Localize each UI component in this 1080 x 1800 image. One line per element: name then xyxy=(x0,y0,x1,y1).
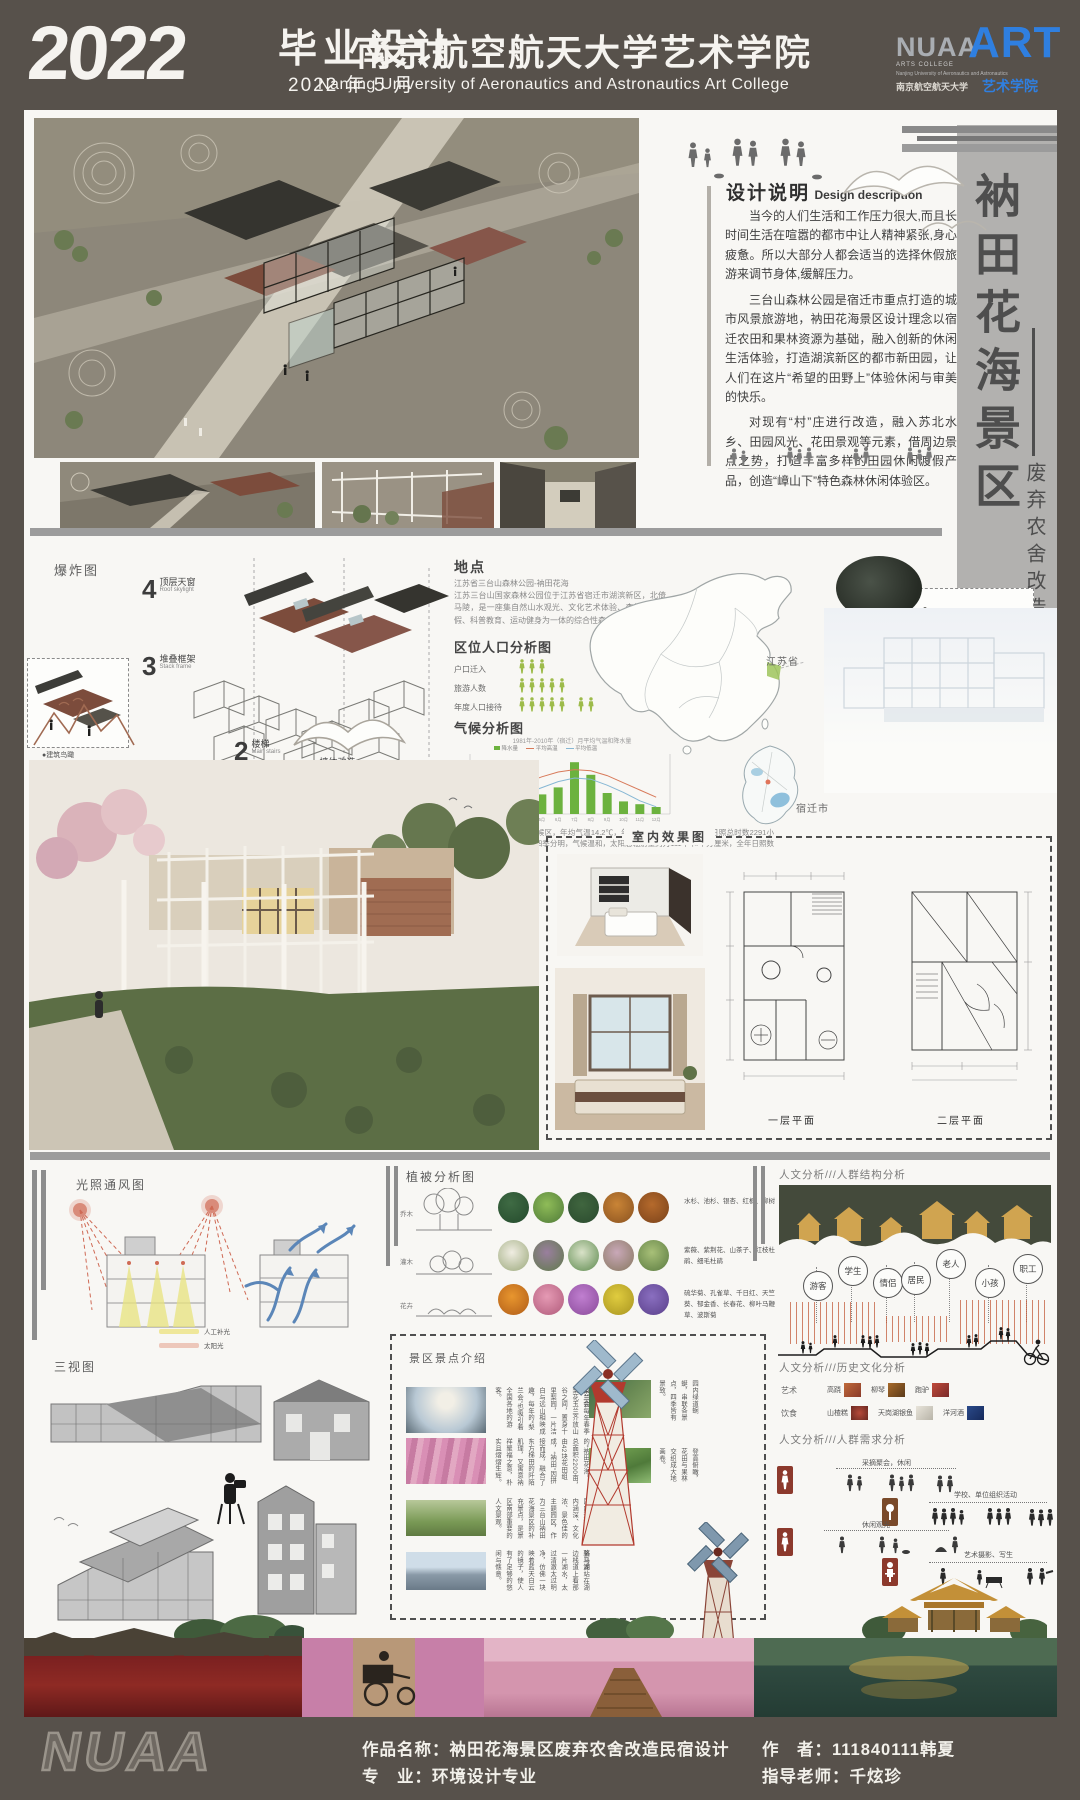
poster-screenshot: { "header": { "year": "2022", "title": "… xyxy=(0,0,1080,1800)
logo-art-text: ART xyxy=(968,18,1061,68)
vegetation-title: 植被分析图 xyxy=(406,1168,476,1185)
veg-photo-purple-shrub xyxy=(533,1240,564,1271)
sunvent-deco-bar-2 xyxy=(41,1170,46,1290)
sunvent-diagram xyxy=(52,1192,367,1330)
step-3-en: Stack frame xyxy=(159,664,195,670)
work-label: 作品名称： xyxy=(362,1741,450,1759)
svg-text:8月: 8月 xyxy=(588,817,595,823)
logo-cn: 南京航空航天大学 xyxy=(896,80,968,93)
group-circle-worker: 职工 xyxy=(1013,1254,1043,1284)
group-circle-child: 小孩 xyxy=(975,1268,1005,1298)
work-value: 衲田花海景区废弃农舍改造民宿设计 xyxy=(450,1741,730,1759)
floor-plan-1 xyxy=(716,850,868,1102)
veg-desc-2: 紫薇、紫荆花、山茶子、红枝杜鹃、细毛杜鹃 xyxy=(684,1245,784,1267)
culture-thumb-gaoqiao xyxy=(844,1383,861,1397)
nuaa-wordmark: NUAA xyxy=(37,1721,220,1783)
perspective-render-3 xyxy=(500,462,636,528)
culture-item-liuqin: 柳琴 xyxy=(871,1385,885,1395)
tree-cutout-2 xyxy=(584,1608,674,1642)
step-2-cn: 楼梯 xyxy=(251,740,280,749)
need-icon-3 xyxy=(777,1528,793,1556)
need-bracket-2 xyxy=(929,1502,1047,1503)
seagull-icons xyxy=(824,138,1009,263)
rickshaw-silhouette xyxy=(354,1646,424,1710)
school-name-en: Nanjing University of Aeronautics and As… xyxy=(318,76,789,94)
sunvent-title: 光照通风图 xyxy=(76,1176,146,1193)
population-row-3-label: 年度人口接待 xyxy=(454,702,518,713)
scenic-photo-3 xyxy=(406,1500,486,1536)
svg-text:6月: 6月 xyxy=(555,817,562,823)
veg-photo-pink-flower xyxy=(533,1284,564,1315)
floor-plan-2 xyxy=(882,854,1040,1100)
author-row: 作 者：111840111韩夏 xyxy=(762,1737,955,1764)
legend-high: 平均高温 xyxy=(526,744,558,752)
school-name-cn: 南京航空航天大学艺术学院 xyxy=(356,24,812,76)
crowd-silhouettes xyxy=(724,440,949,476)
population-row-1-label: 户口迁入 xyxy=(454,664,518,675)
culture-item-shanzha: 山楂糕 xyxy=(827,1408,848,1418)
mountain-sketch xyxy=(29,695,139,753)
population-row-1-icons xyxy=(518,659,548,679)
veg-photo-violet-flower xyxy=(638,1284,669,1315)
pavilion-reflection-glow xyxy=(834,1648,984,1708)
culture-thumb-shanzha xyxy=(851,1406,868,1420)
subtitle-dash xyxy=(1032,328,1035,456)
svg-text:12月: 12月 xyxy=(652,817,661,823)
group-circle-tourist: 游客 xyxy=(803,1271,833,1301)
exploded-step-4: 4 顶层天窗Roof skylight xyxy=(142,578,195,601)
step-3-num: 3 xyxy=(142,655,156,678)
design-desc-p2: 三台山森林公园是宿迁市重点打造的城市风景旅游地，衲田花海景区设计理念以宿迁农田和… xyxy=(725,291,957,408)
veg-photo-purple-flower xyxy=(568,1284,599,1315)
veg-photo-white-green xyxy=(568,1240,599,1271)
windmill-large xyxy=(544,1340,672,1548)
veg-photo-autumn-2 xyxy=(638,1192,669,1223)
veg-circles-row-1 xyxy=(498,1192,673,1223)
need-group-1b xyxy=(886,1472,920,1494)
interior-render-1 xyxy=(557,854,703,956)
sunvent-deco-bar-1 xyxy=(32,1170,37,1340)
legend-precip: 降水量 xyxy=(494,744,518,752)
population-row-1: 户口迁入 xyxy=(454,659,548,679)
work-title-row: 作品名称：衲田花海景区废弃农舍改造民宿设计 xyxy=(362,1737,730,1764)
village-roofline xyxy=(24,1624,302,1656)
veg-photo-ginkgo xyxy=(568,1192,599,1223)
need-label-4: 艺术摄影、写生 xyxy=(964,1550,1013,1560)
veg-sketch-flowers xyxy=(414,1286,494,1322)
section-divider-2 xyxy=(30,1152,1050,1160)
pavilion-cutout xyxy=(862,1572,1047,1642)
floor-plan-2-label: 二层平面 xyxy=(882,1112,1040,1127)
perspective-render-2 xyxy=(322,462,494,528)
nuaa-art-logo: NUAA ART ARTS COLLEGE Nanjing University… xyxy=(896,18,1066,98)
major-row: 专 业：环境设计专业 xyxy=(362,1764,730,1791)
perspective-render-1 xyxy=(60,462,315,528)
veg-photo-green-shrub xyxy=(638,1240,669,1271)
advisor-label: 指导老师： xyxy=(762,1768,850,1786)
scenic-photo-2 xyxy=(406,1438,486,1484)
location-title: 地点 xyxy=(454,557,486,577)
population-row-2-icons xyxy=(518,678,568,698)
legend-artificial: 人工补光 xyxy=(159,1326,230,1336)
svg-text:10月: 10月 xyxy=(619,817,628,823)
interior-render-2 xyxy=(555,968,705,1130)
design-desc-title-cn: 设计说明 xyxy=(726,183,810,204)
veg-cat-1: 乔木 xyxy=(400,1208,413,1218)
logo-nuaa-text: NUAA xyxy=(896,32,978,63)
population-title: 区位人口分析图 xyxy=(454,637,552,656)
culture-cat-food: 饮食 xyxy=(781,1408,827,1419)
humanities-h1: 人文分析///人群结构分析 xyxy=(779,1167,906,1182)
need-bracket-3 xyxy=(824,1530,949,1531)
scenic-title: 景区景点介绍 xyxy=(409,1350,487,1366)
city-label: 宿迁市 xyxy=(796,800,829,815)
desc-divider-line xyxy=(707,186,711,466)
boardwalk xyxy=(584,1668,664,1717)
step-2-en: Main stairs xyxy=(251,749,280,755)
veg-photo-grass-plume xyxy=(603,1240,634,1271)
veg-photo-orange-flower xyxy=(498,1284,529,1315)
veg-circles-row-2 xyxy=(498,1240,673,1271)
culture-item-paolv: 跑驴 xyxy=(915,1385,929,1395)
svg-text:5月: 5月 xyxy=(539,817,546,823)
group-circle-couple: 情侣 xyxy=(873,1268,903,1298)
climate-title: 气候分析图 xyxy=(454,718,524,737)
scenic-photo-1 xyxy=(406,1387,486,1433)
svg-text:7月: 7月 xyxy=(571,817,578,823)
province-label: 江苏省 xyxy=(766,653,799,668)
legend-sunlight: 太阳光 xyxy=(159,1340,230,1350)
bottom-photo-strip xyxy=(24,1638,1057,1717)
step-4-en: Roof skylight xyxy=(159,587,195,593)
veg-circles-row-3 xyxy=(498,1284,673,1315)
veg-desc-3: 硫华菊、孔雀草、千日红、天竺葵、郁金香、长春花、柳叶马鞭草、波斯菊 xyxy=(684,1288,784,1321)
culture-thumb-paolv xyxy=(932,1383,949,1397)
need-icon-1 xyxy=(777,1466,793,1494)
credits-right: 作 者：111840111韩夏 指导老师：千炫珍 xyxy=(762,1737,955,1791)
interior-box-title: 室内效果图 xyxy=(624,828,715,845)
culture-item-yanghe: 洋河酒 xyxy=(943,1408,964,1418)
need-group-3b xyxy=(874,1534,914,1556)
footer: NUAA 作品名称：衲田花海景区废弃农舍改造民宿设计 专 业：环境设计专业 作 … xyxy=(0,1717,1080,1800)
credits-left: 作品名称：衲田花海景区废弃农舍改造民宿设计 专 业：环境设计专业 xyxy=(362,1737,730,1791)
veg-sketch-shrubs xyxy=(414,1240,494,1280)
year-label: 2022 xyxy=(25,10,188,97)
humanities-deco-bar-2 xyxy=(761,1166,765,1244)
advisor-row: 指导老师：千炫珍 xyxy=(762,1764,955,1791)
faded-building-lines xyxy=(824,608,1057,793)
need-label-1: 采摘聚会，休闲 xyxy=(862,1458,911,1468)
author-label: 作 者： xyxy=(762,1741,832,1759)
exploded-step-3: 3 堆叠框架Stack frame xyxy=(142,655,195,678)
group-circle-student: 学生 xyxy=(838,1256,868,1286)
culture-row-art: 艺术 高跷 柳琴 跑驴 xyxy=(781,1383,959,1397)
culture-thumb-yanghe xyxy=(967,1406,984,1420)
population-row-2-label: 旅游人数 xyxy=(454,683,518,694)
faded-building-render xyxy=(824,608,1057,793)
veg-cat-3: 花卉 xyxy=(400,1300,413,1310)
poster-board: 设计说明 Design description 当今的人们生活和工作压力很大,而… xyxy=(24,110,1057,1717)
veg-desc-1: 水杉、池杉、银杏、红枫、柳树 xyxy=(684,1196,784,1207)
night-skyline xyxy=(779,1185,1051,1267)
need-label-2: 学校、单位组织活动 xyxy=(954,1490,1017,1500)
step-4-cn: 顶层天窗 xyxy=(159,578,195,587)
scenic-desc-4: 骆马湖站在湖边栈道上看那一片湖水，太过清澈太过明净，仿佛一块映着蓝天白云的镜子，… xyxy=(492,1550,591,1596)
need-label-3: 休闲观光 xyxy=(862,1520,890,1530)
step-4-num: 4 xyxy=(142,578,156,601)
group-circle-resident: 居民 xyxy=(901,1265,931,1295)
culture-item-yinyu: 天岗湖银鱼 xyxy=(878,1408,913,1418)
scenic-photo-4 xyxy=(406,1552,486,1590)
header: 2022 毕业设计 2022 年 5 月 南京航空航天大学艺术学院 Nanjin… xyxy=(0,0,1080,110)
floor-plan-1-label: 一层平面 xyxy=(716,1112,868,1127)
group-circle-elder: 老人 xyxy=(936,1249,966,1279)
veg-photo-green-tree xyxy=(533,1192,564,1223)
major-label: 专 业： xyxy=(362,1768,432,1786)
vegetation-deco-bar-2 xyxy=(394,1166,398,1246)
veg-photo-yellow-flower xyxy=(603,1284,634,1315)
humanities-h2: 人文分析///历史文化分析 xyxy=(779,1360,906,1375)
threeview-drawings xyxy=(46,1372,381,1627)
step-3-cn: 堆叠框架 xyxy=(159,655,195,664)
culture-thumb-liuqin xyxy=(888,1383,905,1397)
culture-item-gaoqiao: 高跷 xyxy=(827,1385,841,1395)
veg-cat-2: 灌木 xyxy=(400,1256,413,1266)
veg-photo-white-bloom xyxy=(498,1240,529,1271)
logo-arts-college: ARTS COLLEGE xyxy=(896,62,954,68)
need-group-3a xyxy=(832,1534,866,1556)
need-bracket-1 xyxy=(836,1468,956,1469)
svg-text:11月: 11月 xyxy=(636,817,645,823)
suqian-map xyxy=(732,742,807,834)
section-divider-1 xyxy=(30,528,942,536)
site-axonometric-render xyxy=(34,118,639,458)
advisor-value: 千炫珍 xyxy=(850,1768,903,1786)
vegetation-deco-bar-1 xyxy=(386,1166,390,1266)
need-group-2a xyxy=(929,1505,969,1529)
humanities-deco-bar-1 xyxy=(753,1166,757,1261)
exterior-render xyxy=(29,760,539,1150)
need-group-3c xyxy=(929,1534,969,1556)
culture-cat-art: 艺术 xyxy=(781,1385,827,1396)
author-value: 111840111韩夏 xyxy=(832,1741,955,1759)
veg-sketch-trees xyxy=(414,1188,494,1234)
veg-photo-autumn-1 xyxy=(603,1192,634,1223)
svg-text:9月: 9月 xyxy=(604,817,611,823)
need-group-2c xyxy=(1026,1506,1056,1530)
panel-deco-bar-1 xyxy=(902,126,1057,133)
population-row-2: 旅游人数 xyxy=(454,678,568,698)
need-bracket-4 xyxy=(929,1562,1047,1563)
culture-thumb-yinyu xyxy=(916,1406,933,1420)
humanities-h3: 人文分析///人群需求分析 xyxy=(779,1432,906,1447)
need-group-2b xyxy=(982,1505,1022,1529)
need-group-1a xyxy=(842,1472,876,1494)
logo-cn2: 艺术学院 xyxy=(982,76,1038,96)
veg-photo-conifer xyxy=(498,1192,529,1223)
culture-row-food: 饮食 山楂糕 天岗湖银鱼 洋河酒 xyxy=(781,1406,994,1420)
major-value: 环境设计专业 xyxy=(432,1768,537,1786)
sunvent-legend: 人工补光 太阳光 xyxy=(159,1326,230,1354)
